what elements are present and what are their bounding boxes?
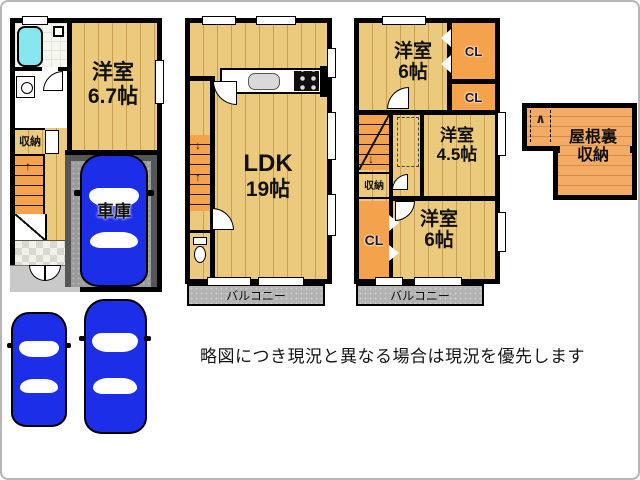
window: [202, 16, 236, 25]
closet-top: CL: [452, 23, 495, 79]
bathtub-icon: [17, 26, 43, 67]
balcony-2f-label: バルコニー: [226, 287, 286, 304]
window: [375, 277, 403, 286]
floorplan-3f: CL CL ↓ 収納 CL 洋室: [354, 18, 500, 284]
bathroom-area: [15, 23, 67, 128]
window: [497, 112, 506, 156]
under-stairs-area: [15, 214, 47, 240]
door-swing-icon: [392, 174, 408, 190]
window: [207, 277, 251, 286]
balcony-3f: バルコニー: [356, 284, 484, 306]
interior-wall: [190, 230, 210, 233]
window: [22, 16, 48, 25]
bathroom-door-gap: [42, 67, 58, 71]
floorplan-canvas: 収納 ↑ 洋室6.7帖 車庫: [0, 0, 640, 480]
garage-label: 車庫: [92, 202, 136, 221]
room-1f-label: 洋室6.7帖: [70, 61, 156, 108]
closet-left: CL: [359, 201, 389, 279]
storage-1f-label: 収納: [15, 136, 45, 148]
stove-icon: [294, 71, 319, 91]
storage-3f-label: 収納: [359, 181, 389, 192]
disclaimer-text: 略図につき現況と異なる場合は現況を優先します: [200, 342, 585, 367]
window: [414, 277, 462, 286]
parked-car-icon: [8, 312, 70, 428]
room-3f-mid-label: 洋室4.5帖: [421, 126, 493, 164]
interior-wall: [210, 76, 215, 279]
balcony-3f-label: バルコニー: [390, 287, 450, 304]
door-swing-icon: [213, 81, 237, 105]
room-3f-bottom-label: 洋室6帖: [405, 209, 473, 252]
parked-car-icon: [80, 299, 150, 435]
window: [155, 60, 164, 104]
attic-ladder-icon: ∧: [530, 110, 551, 142]
window: [382, 16, 426, 25]
bath-sink-icon: [53, 26, 64, 37]
stairs-up-arrow-icon: ↑: [195, 171, 201, 183]
stairs-up-arrow-icon: ↑: [25, 160, 31, 172]
attic-label: 屋根裏収納: [551, 129, 635, 165]
room-3f-top-label: 洋室6帖: [381, 41, 445, 84]
stairs-down-arrow-icon: ↓: [368, 153, 374, 165]
stairwell-opening: [397, 117, 419, 167]
entrance-tile: [15, 240, 69, 265]
room-2f-label: LDK19帖: [228, 151, 308, 201]
door-swing-icon: [212, 208, 234, 230]
folding-door-icon: [389, 245, 399, 261]
folding-door-icon: [45, 130, 59, 154]
toilet-icon: [194, 246, 206, 263]
storage-1f: 収納: [15, 128, 45, 156]
closet-mid: CL: [452, 84, 495, 110]
window: [258, 277, 304, 286]
stairs-3f: [359, 115, 389, 170]
balcony-2f: バルコニー: [187, 284, 325, 306]
storage-3f: 収納: [359, 172, 389, 199]
window: [327, 112, 336, 160]
kitchen-sink-icon: [248, 73, 280, 90]
stairs-down-arrow-icon: ↓: [195, 139, 201, 151]
window: [327, 48, 336, 78]
door-swing-icon: [387, 87, 409, 109]
toilet-icon: [193, 237, 207, 245]
window: [497, 212, 506, 252]
window: [256, 16, 296, 25]
floorplan-2f: ↓ ↑ LDK19帖: [185, 18, 332, 284]
window: [327, 194, 336, 236]
kitchen-wall-stub: [320, 66, 327, 97]
washbasin-icon: [16, 76, 35, 98]
door-swing-icon: [43, 71, 63, 91]
